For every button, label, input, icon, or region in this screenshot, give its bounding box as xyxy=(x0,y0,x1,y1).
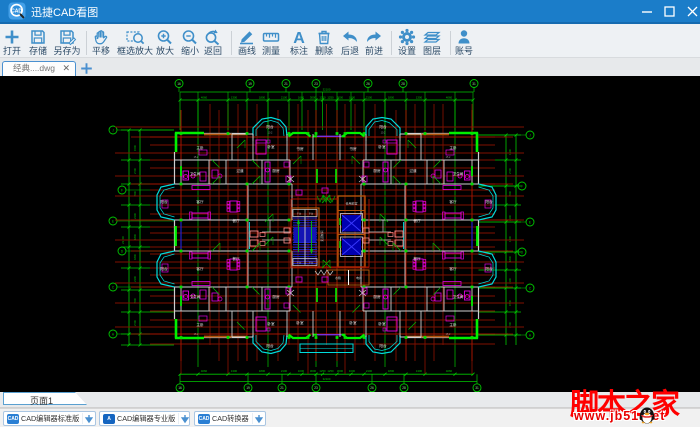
svg-text:厨房: 厨房 xyxy=(373,168,381,173)
svg-text:4060: 4060 xyxy=(446,369,453,373)
svg-text:主卧: 主卧 xyxy=(449,145,457,150)
svg-text:D: D xyxy=(521,250,524,254)
svg-text:26: 26 xyxy=(366,82,370,86)
svg-text:4060: 4060 xyxy=(201,369,208,373)
svg-text:1250: 1250 xyxy=(319,95,326,99)
svg-text:10.2: 10.2 xyxy=(381,132,386,135)
svg-text:卧室: 卧室 xyxy=(349,320,357,325)
svg-text:2100: 2100 xyxy=(281,95,288,99)
svg-text:合用前室: 合用前室 xyxy=(345,201,357,206)
svg-text:餐厅: 餐厅 xyxy=(232,256,240,261)
svg-text:1800: 1800 xyxy=(508,236,512,242)
svg-text:阳台: 阳台 xyxy=(160,266,168,271)
svg-text:32100: 32100 xyxy=(323,377,331,381)
svg-text:E: E xyxy=(112,219,114,223)
svg-text:阳台: 阳台 xyxy=(379,343,387,348)
svg-text:F: F xyxy=(521,184,523,188)
svg-text:2100: 2100 xyxy=(133,213,137,219)
svg-text:2700: 2700 xyxy=(133,320,137,326)
svg-text:主卧: 主卧 xyxy=(196,322,204,327)
svg-text:3000: 3000 xyxy=(337,95,344,99)
svg-text:2100: 2100 xyxy=(366,95,373,99)
svg-text:平台: 平台 xyxy=(297,212,302,216)
svg-text:阳台: 阳台 xyxy=(160,199,168,204)
svg-text:餐厅: 餐厅 xyxy=(232,218,240,223)
svg-text:CAD: CAD xyxy=(11,8,22,14)
svg-text:1800: 1800 xyxy=(388,95,395,99)
svg-text:1300: 1300 xyxy=(231,95,238,99)
svg-text:1800: 1800 xyxy=(508,256,512,262)
svg-text:平台: 平台 xyxy=(309,212,314,216)
svg-text:4060: 4060 xyxy=(446,95,453,99)
svg-text:21: 21 xyxy=(280,386,284,390)
svg-text:书房: 书房 xyxy=(349,146,357,151)
svg-text:1600: 1600 xyxy=(298,95,305,99)
svg-text:28: 28 xyxy=(402,386,406,390)
svg-text:A: A xyxy=(112,332,115,336)
svg-text:1300: 1300 xyxy=(416,95,423,99)
svg-text:J: J xyxy=(112,128,114,132)
svg-text:书房: 书房 xyxy=(296,146,304,151)
svg-text:过道: 过道 xyxy=(409,168,417,173)
svg-text:阳台: 阳台 xyxy=(266,343,274,348)
svg-text:卫生间: 卫生间 xyxy=(453,294,464,299)
svg-text:走道梯间: 走道梯间 xyxy=(320,230,324,241)
svg-text:水箱: 水箱 xyxy=(335,275,341,280)
svg-text:卧室: 卧室 xyxy=(296,320,304,325)
svg-text:2100: 2100 xyxy=(366,369,373,373)
svg-text:1800: 1800 xyxy=(388,369,395,373)
svg-text:主卧: 主卧 xyxy=(449,322,457,327)
svg-text:厨房: 厨房 xyxy=(373,294,381,299)
svg-text:1800: 1800 xyxy=(259,369,266,373)
svg-text:主卧: 主卧 xyxy=(196,145,204,150)
svg-text:卧室: 卧室 xyxy=(378,144,386,149)
svg-text:4060: 4060 xyxy=(201,95,208,99)
svg-text:32100: 32100 xyxy=(323,88,331,92)
svg-text:21: 21 xyxy=(284,82,288,86)
svg-text:28: 28 xyxy=(401,82,405,86)
svg-text:31: 31 xyxy=(475,386,479,390)
svg-text:过道: 过道 xyxy=(236,168,244,173)
svg-text:阳台: 阳台 xyxy=(485,199,493,204)
svg-text:1600: 1600 xyxy=(349,95,356,99)
svg-text:F: F xyxy=(121,188,123,192)
svg-text:15.2: 15.2 xyxy=(446,156,451,159)
svg-text:电井: 电井 xyxy=(356,275,362,280)
svg-text:3000: 3000 xyxy=(337,369,344,373)
svg-text:卧室: 卧室 xyxy=(267,321,275,326)
svg-text:15.2: 15.2 xyxy=(194,333,199,336)
svg-text:26: 26 xyxy=(370,386,374,390)
svg-text:C: C xyxy=(112,285,115,289)
svg-text:1500: 1500 xyxy=(133,145,137,151)
svg-text:2100: 2100 xyxy=(133,276,137,282)
svg-text:1500: 1500 xyxy=(508,149,512,155)
svg-text:厨房: 厨房 xyxy=(272,294,280,299)
svg-text:平台: 平台 xyxy=(297,261,302,265)
svg-text:阳台: 阳台 xyxy=(485,266,493,271)
svg-text:阳台: 阳台 xyxy=(266,124,274,129)
svg-text:餐厅: 餐厅 xyxy=(413,256,421,261)
svg-text:1250: 1250 xyxy=(319,369,326,373)
svg-text:19: 19 xyxy=(248,82,252,86)
svg-text:1250: 1250 xyxy=(327,369,334,373)
svg-text:23: 23 xyxy=(314,386,318,390)
svg-text:客厅: 客厅 xyxy=(449,266,457,271)
svg-text:1300: 1300 xyxy=(231,369,238,373)
svg-text:E: E xyxy=(529,220,531,224)
svg-text:卫生间: 卫生间 xyxy=(453,171,464,176)
svg-text:卫生间: 卫生间 xyxy=(190,294,201,299)
svg-text:23: 23 xyxy=(314,82,318,86)
svg-text:卧室: 卧室 xyxy=(378,321,386,326)
svg-text:客厅: 客厅 xyxy=(196,199,204,204)
svg-text:1600: 1600 xyxy=(349,369,356,373)
svg-text:31: 31 xyxy=(472,82,476,86)
svg-text:1800: 1800 xyxy=(133,234,137,240)
svg-text:15.2: 15.2 xyxy=(194,156,199,159)
svg-text:D: D xyxy=(121,249,124,253)
svg-text:1800: 1800 xyxy=(259,95,266,99)
svg-text:平台: 平台 xyxy=(309,261,314,265)
svg-text:2700: 2700 xyxy=(133,168,137,174)
svg-text:阳台: 阳台 xyxy=(379,124,387,129)
svg-text:C: C xyxy=(529,286,532,290)
svg-text:3000: 3000 xyxy=(310,369,317,373)
svg-text:19: 19 xyxy=(246,386,250,390)
svg-text:1800: 1800 xyxy=(133,254,137,260)
svg-text:2700: 2700 xyxy=(508,168,512,174)
svg-text:餐厅: 餐厅 xyxy=(413,218,421,223)
svg-text:卧室: 卧室 xyxy=(267,144,275,149)
svg-text:16: 16 xyxy=(177,82,181,86)
svg-text:卫生间: 卫生间 xyxy=(190,171,201,176)
svg-text:A: A xyxy=(529,333,532,337)
svg-text:10.2: 10.2 xyxy=(268,132,273,135)
svg-text:J: J xyxy=(529,133,531,137)
svg-text:2100: 2100 xyxy=(281,369,288,373)
svg-text:厨房: 厨房 xyxy=(272,168,280,173)
svg-text:1600: 1600 xyxy=(298,369,305,373)
svg-text:1300: 1300 xyxy=(416,369,423,373)
svg-text:1250: 1250 xyxy=(327,95,334,99)
svg-text:16: 16 xyxy=(178,386,182,390)
svg-text:客厅: 客厅 xyxy=(449,199,457,204)
svg-text:客厅: 客厅 xyxy=(196,266,204,271)
svg-text:3000: 3000 xyxy=(310,95,317,99)
svg-text:15.2: 15.2 xyxy=(446,333,451,336)
